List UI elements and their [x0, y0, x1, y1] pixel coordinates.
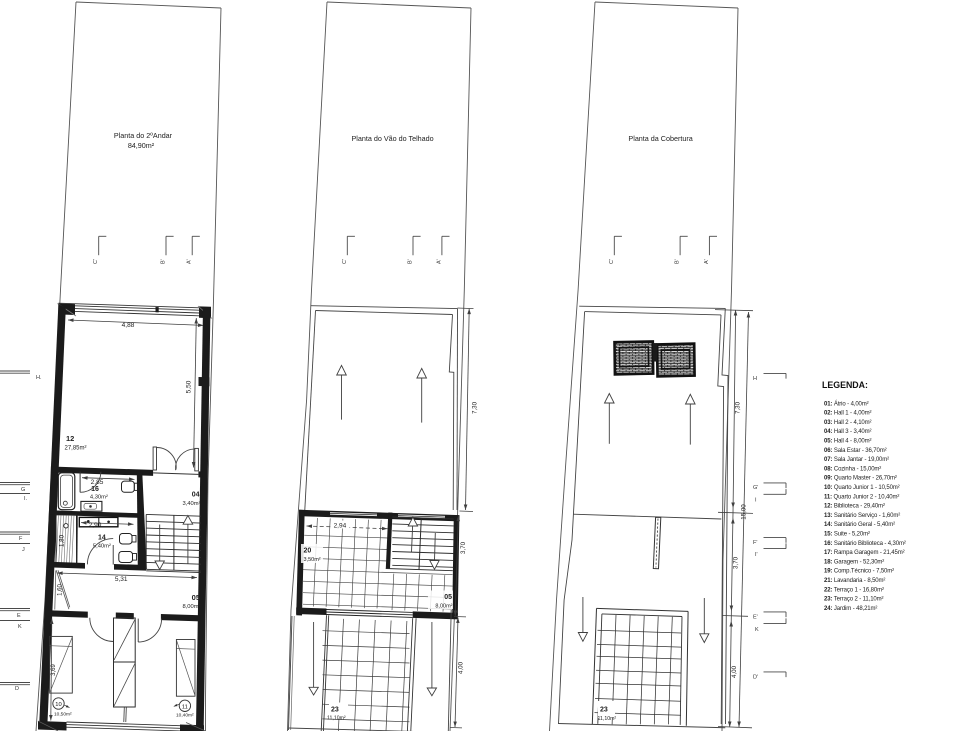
svg-text:LEGENDA:: LEGENDA: — [822, 380, 868, 390]
svg-text:B': B' — [675, 259, 681, 264]
svg-text:J: J — [22, 547, 25, 553]
svg-text:14: 14 — [98, 535, 106, 542]
svg-text:84,90m²: 84,90m² — [128, 141, 155, 150]
svg-text:05: 05 — [444, 594, 452, 601]
svg-text:20: 20 — [304, 548, 312, 555]
svg-text:15: Suite - 5,20m²: 15: Suite - 5,20m² — [824, 532, 870, 538]
svg-text:1,80: 1,80 — [59, 534, 66, 547]
svg-text:3,40m²: 3,40m² — [182, 501, 200, 507]
svg-text:11,10m²: 11,10m² — [598, 716, 617, 722]
svg-text:4,00: 4,00 — [457, 661, 464, 674]
svg-text:10: 10 — [55, 702, 61, 708]
svg-text:5,50: 5,50 — [186, 380, 193, 393]
svg-text:B': B' — [408, 259, 414, 264]
svg-text:A': A' — [187, 259, 193, 264]
svg-text:D: D — [15, 686, 19, 692]
svg-text:4,88: 4,88 — [122, 322, 135, 329]
svg-text:10,50m²: 10,50m² — [54, 712, 72, 718]
svg-text:8,00m²: 8,00m² — [182, 604, 200, 610]
svg-text:23: 23 — [600, 707, 608, 714]
svg-text:3,69: 3,69 — [51, 664, 57, 676]
svg-text:09: Quarto Master - 26,70m²: 09: Quarto Master - 26,70m² — [824, 476, 897, 482]
svg-text:E: E — [17, 613, 21, 619]
svg-text:23: Terraço 2 - 11,10m²: 23: Terraço 2 - 11,10m² — [824, 597, 884, 603]
svg-text:11: Quarto Junior 2 - 10,40m²: 11: Quarto Junior 2 - 10,40m² — [824, 494, 899, 500]
svg-text:3,70: 3,70 — [732, 556, 739, 569]
svg-text:16: Sanitário Biblioteca - 4,3: 16: Sanitário Biblioteca - 4,30m² — [824, 541, 906, 547]
svg-text:03: Hall 2 - 4,10m²: 03: Hall 2 - 4,10m² — [824, 420, 872, 426]
svg-text:17: Rampa Garagem - 21,45m²: 17: Rampa Garagem - 21,45m² — [824, 550, 905, 556]
svg-text:D': D' — [753, 675, 758, 681]
svg-text:K: K — [18, 624, 22, 630]
svg-text:23: 23 — [331, 707, 339, 714]
svg-text:H.: H. — [36, 375, 42, 381]
svg-text:12: 12 — [66, 434, 74, 443]
svg-text:3,70: 3,70 — [460, 541, 467, 554]
svg-text:11: 11 — [182, 704, 188, 710]
svg-text:7,30: 7,30 — [472, 401, 479, 414]
svg-text:11,10m²: 11,10m² — [327, 716, 346, 722]
svg-text:05: 05 — [192, 593, 200, 602]
svg-text:Planta da Cobertura: Planta da Cobertura — [628, 134, 692, 143]
svg-text:H: H — [753, 376, 757, 382]
svg-text:07: Sala Jantar - 19,00m²: 07: Sala Jantar - 19,00m² — [824, 457, 889, 463]
svg-text:04: 04 — [192, 491, 200, 498]
svg-text:7,30: 7,30 — [734, 401, 741, 414]
svg-text:F': F' — [753, 540, 757, 546]
svg-text:2,94: 2,94 — [334, 523, 347, 530]
svg-text:19: Comp.Técnico - 7,50m²: 19: Comp.Técnico - 7,50m² — [824, 569, 894, 575]
svg-text:15,00: 15,00 — [741, 504, 748, 520]
svg-text:06: Sala Estar - 36,70m²: 06: Sala Estar - 36,70m² — [824, 448, 887, 454]
svg-text:A': A' — [704, 259, 710, 264]
svg-text:18: Garagem - 52,30m²: 18: Garagem - 52,30m² — [824, 559, 884, 565]
svg-text:2,85: 2,85 — [91, 479, 104, 486]
svg-text:13: Sanitário Serviço - 1,60m²: 13: Sanitário Serviço - 1,60m² — [824, 513, 900, 519]
svg-text:05: Hall 4 - 8,00m²: 05: Hall 4 - 8,00m² — [824, 439, 872, 445]
svg-text:I.: I. — [24, 496, 28, 502]
svg-text:C': C' — [93, 259, 99, 264]
svg-text:1,60: 1,60 — [58, 584, 64, 596]
svg-text:04: Hall 3 - 3,40m²: 04: Hall 3 - 3,40m² — [824, 429, 872, 435]
svg-text:4,00: 4,00 — [731, 665, 738, 678]
svg-text:08: Cozinha - 15,00m²: 08: Cozinha - 15,00m² — [824, 466, 881, 472]
svg-text:E': E' — [753, 615, 758, 621]
svg-text:14: Sanitário Geral - 5,40m²: 14: Sanitário Geral - 5,40m² — [824, 522, 895, 528]
svg-text:B': B' — [161, 259, 167, 264]
svg-text:5,31: 5,31 — [115, 576, 128, 583]
svg-text:8,00m²: 8,00m² — [435, 603, 452, 609]
svg-text:C': C' — [342, 259, 348, 264]
svg-text:12: Biblioteca - 29,40m²: 12: Biblioteca - 29,40m² — [824, 504, 885, 510]
svg-text:16: 16 — [91, 486, 99, 493]
svg-text:22: Terraço 1 - 16,80m²: 22: Terraço 1 - 16,80m² — [824, 587, 884, 593]
svg-text:3,50m²: 3,50m² — [304, 557, 321, 563]
svg-text:A': A' — [436, 259, 442, 264]
svg-text:02: Hall 1 - 4,00m²: 02: Hall 1 - 4,00m² — [824, 411, 872, 417]
svg-text:24: Jardim - 48,21m²: 24: Jardim - 48,21m² — [824, 606, 877, 612]
svg-text:I': I' — [755, 552, 758, 558]
svg-text:K: K — [755, 627, 759, 633]
svg-text:G': G' — [753, 485, 758, 491]
svg-text:C': C' — [609, 259, 615, 264]
svg-text:01: Átrio - 4,00m²: 01: Átrio - 4,00m² — [824, 400, 869, 407]
svg-text:21: Lavandaria - 8,50m²: 21: Lavandaria - 8,50m² — [824, 578, 885, 584]
svg-text:10: Quarto Junior 1 - 10,50m²: 10: Quarto Junior 1 - 10,50m² — [824, 485, 900, 491]
svg-text:10,40m²: 10,40m² — [176, 713, 194, 719]
svg-text:4,30m²: 4,30m² — [90, 495, 108, 501]
svg-text:2,90: 2,90 — [89, 522, 102, 529]
svg-text:Planta do Vão do Telhado: Planta do Vão do Telhado — [351, 134, 433, 143]
svg-text:Planta do 2ºAndar: Planta do 2ºAndar — [114, 131, 173, 140]
svg-text:G: G — [21, 487, 25, 493]
svg-text:27,85m²: 27,85m² — [65, 446, 87, 452]
svg-text:5,40m²: 5,40m² — [93, 544, 111, 550]
